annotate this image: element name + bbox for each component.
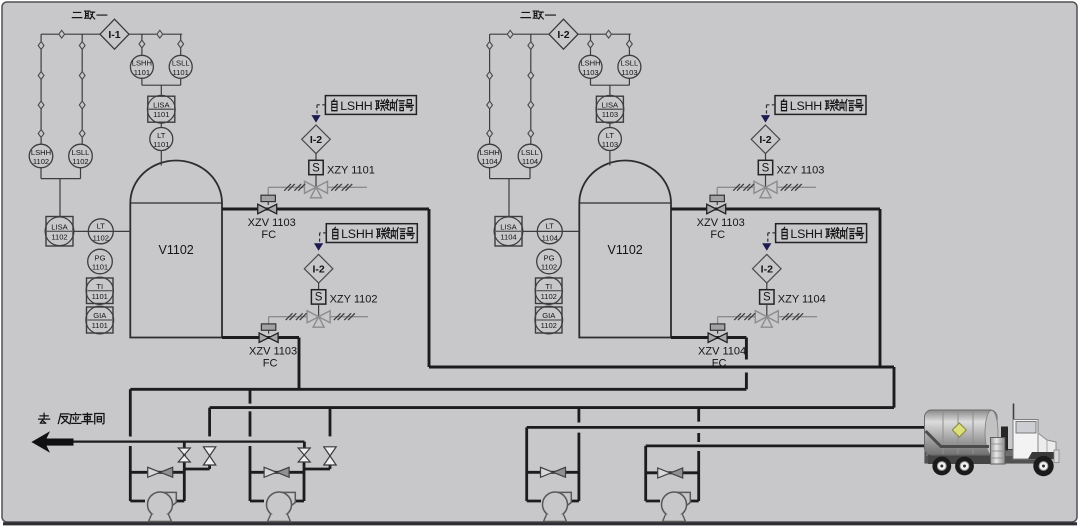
svg-text:XZY 1103: XZY 1103 bbox=[777, 164, 825, 176]
svg-text:LSHH: LSHH bbox=[580, 59, 600, 68]
svg-text:TI: TI bbox=[96, 282, 103, 291]
svg-text:1104: 1104 bbox=[500, 232, 516, 241]
svg-text:1103: 1103 bbox=[582, 68, 598, 77]
svg-text:1102: 1102 bbox=[541, 321, 557, 330]
svg-text:1102: 1102 bbox=[33, 157, 49, 166]
svg-text:PG: PG bbox=[544, 253, 555, 262]
svg-text:1102: 1102 bbox=[541, 292, 557, 301]
svg-text:GIA: GIA bbox=[93, 311, 107, 320]
svg-text:I-2: I-2 bbox=[761, 264, 773, 276]
svg-text:S: S bbox=[315, 292, 323, 304]
svg-text:FC: FC bbox=[712, 358, 727, 370]
svg-text:FC: FC bbox=[710, 229, 725, 241]
svg-text:TI: TI bbox=[545, 282, 552, 291]
svg-text:1102: 1102 bbox=[93, 234, 109, 243]
svg-text:1102: 1102 bbox=[72, 157, 88, 166]
svg-text:LISA: LISA bbox=[153, 100, 170, 109]
svg-text:1104: 1104 bbox=[542, 234, 558, 243]
svg-text:XZV 1103: XZV 1103 bbox=[248, 217, 296, 229]
svg-text:LISA: LISA bbox=[51, 222, 68, 231]
svg-text:1104: 1104 bbox=[522, 157, 538, 166]
svg-text:1104: 1104 bbox=[481, 157, 497, 166]
svg-text:LSLL: LSLL bbox=[172, 59, 190, 68]
svg-text:1102: 1102 bbox=[51, 232, 67, 241]
svg-text:LSHH: LSHH bbox=[790, 99, 822, 113]
svg-text:S: S bbox=[312, 162, 320, 174]
svg-text:S: S bbox=[763, 292, 771, 304]
svg-text:LISA: LISA bbox=[500, 222, 517, 231]
svg-text:1103: 1103 bbox=[602, 110, 618, 119]
svg-text:FC: FC bbox=[261, 229, 276, 241]
svg-text:V1102: V1102 bbox=[608, 243, 643, 257]
svg-text:XZY 1104: XZY 1104 bbox=[778, 294, 826, 306]
svg-text:LT: LT bbox=[97, 222, 106, 231]
svg-text:LSHH: LSHH bbox=[341, 227, 373, 241]
svg-text:XZV 1103: XZV 1103 bbox=[697, 217, 745, 229]
svg-text:1101: 1101 bbox=[153, 140, 169, 149]
svg-text:1101: 1101 bbox=[134, 68, 150, 77]
svg-text:LT: LT bbox=[606, 131, 615, 140]
svg-text:1101: 1101 bbox=[92, 263, 108, 272]
svg-text:XZV 1104: XZV 1104 bbox=[698, 346, 746, 358]
svg-text:LISA: LISA bbox=[602, 100, 619, 109]
svg-text:S: S bbox=[762, 162, 770, 174]
svg-text:GIA: GIA bbox=[542, 311, 556, 320]
svg-text:I-1: I-1 bbox=[108, 29, 120, 41]
svg-text:LSHH: LSHH bbox=[479, 148, 499, 157]
svg-text:I-2: I-2 bbox=[310, 134, 322, 146]
svg-text:XZV 1103: XZV 1103 bbox=[249, 346, 297, 358]
svg-text:LT: LT bbox=[157, 131, 166, 140]
svg-text:XZY 1102: XZY 1102 bbox=[330, 294, 378, 306]
svg-text:1101: 1101 bbox=[92, 321, 108, 330]
svg-text:LSLL: LSLL bbox=[72, 148, 90, 157]
svg-text:I-2: I-2 bbox=[557, 29, 569, 41]
svg-text:XZY 1101: XZY 1101 bbox=[327, 164, 375, 176]
svg-text:LSLL: LSLL bbox=[621, 59, 639, 68]
svg-text:1101: 1101 bbox=[173, 68, 189, 77]
svg-text:1101: 1101 bbox=[153, 110, 169, 119]
svg-text:1103: 1103 bbox=[621, 68, 637, 77]
svg-text:I-2: I-2 bbox=[312, 264, 324, 276]
svg-text:LSHH: LSHH bbox=[790, 227, 822, 241]
svg-text:LT: LT bbox=[546, 222, 555, 231]
svg-text:LSHH: LSHH bbox=[132, 59, 152, 68]
svg-text:I-2: I-2 bbox=[759, 134, 771, 146]
svg-text:1101: 1101 bbox=[92, 292, 108, 301]
svg-text:LSHH: LSHH bbox=[31, 148, 51, 157]
svg-text:PG: PG bbox=[95, 253, 106, 262]
svg-text:FC: FC bbox=[263, 358, 278, 370]
svg-text:LSHH: LSHH bbox=[340, 99, 372, 113]
svg-text:V1102: V1102 bbox=[159, 243, 194, 257]
svg-text:1102: 1102 bbox=[541, 263, 557, 272]
svg-text:LSLL: LSLL bbox=[521, 148, 539, 157]
svg-text:1103: 1103 bbox=[602, 140, 618, 149]
